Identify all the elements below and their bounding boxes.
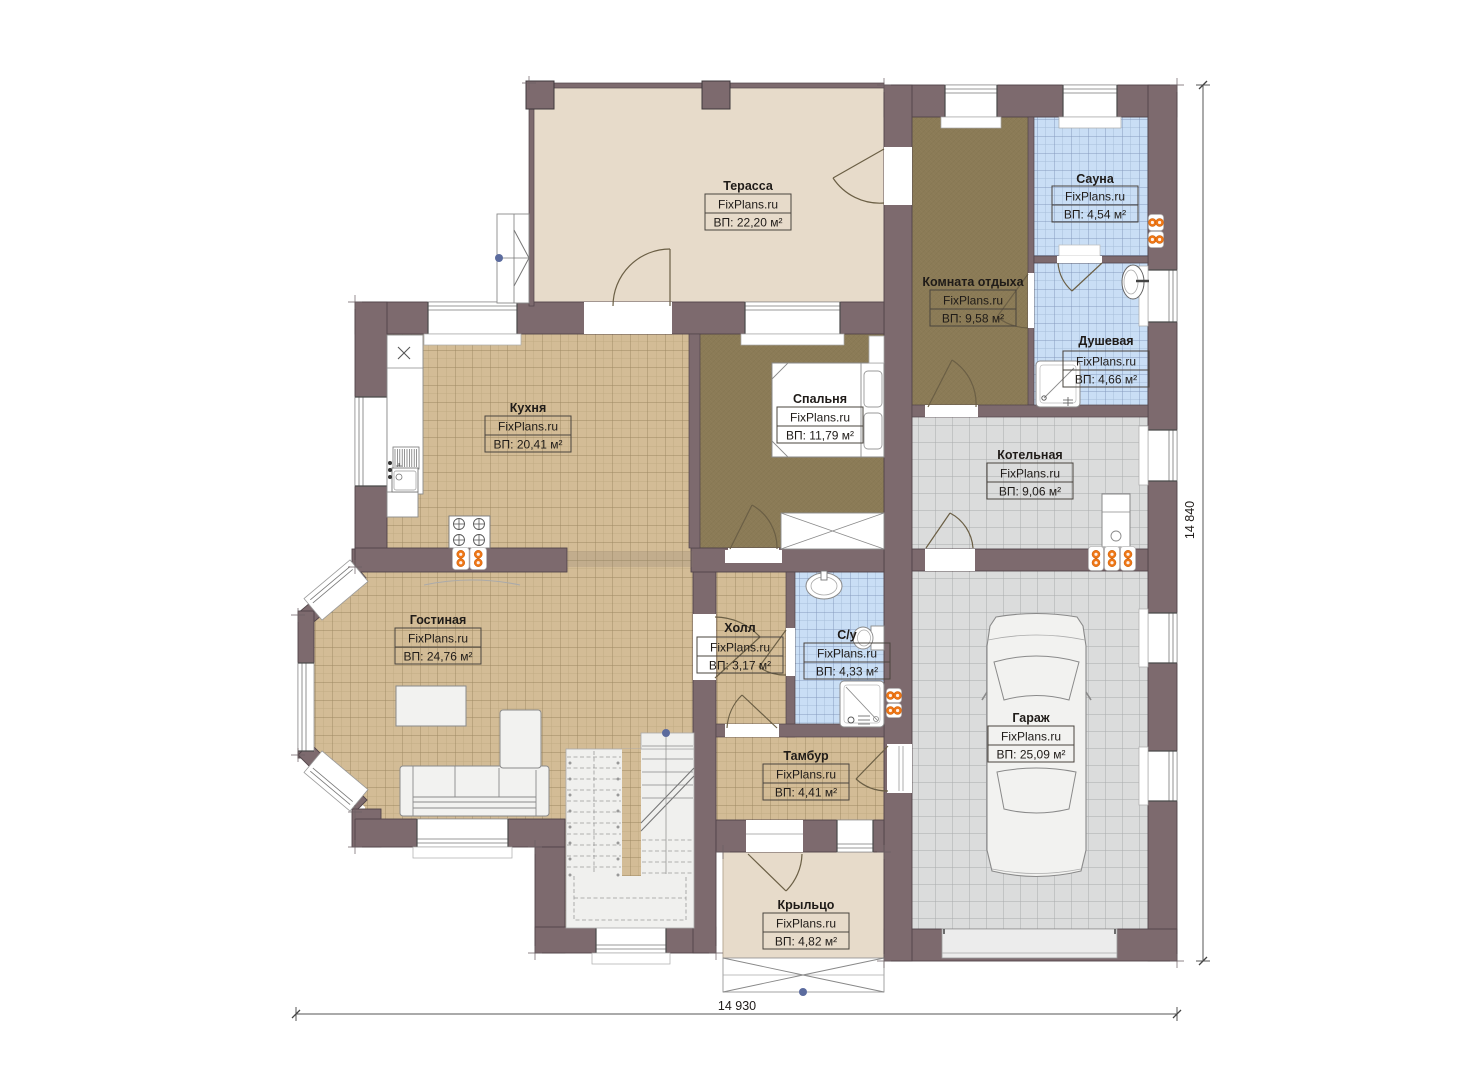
svg-text:ВП: 20,41 м²: ВП: 20,41 м²	[494, 438, 563, 452]
svg-text:Крыльцо: Крыльцо	[778, 898, 835, 912]
svg-text:Комната отдыха: Комната отдыха	[922, 275, 1024, 289]
svg-text:FixPlans.ru: FixPlans.ru	[817, 647, 877, 661]
svg-text:ВП: 24,76 м²: ВП: 24,76 м²	[404, 650, 473, 664]
svg-text:ВП: 4,82 м²: ВП: 4,82 м²	[775, 935, 837, 949]
svg-text:ВП: 4,33 м²: ВП: 4,33 м²	[816, 665, 878, 679]
svg-text:FixPlans.ru: FixPlans.ru	[943, 294, 1003, 308]
svg-text:Тамбур: Тамбур	[783, 749, 829, 763]
svg-text:ВП: 4,41 м²: ВП: 4,41 м²	[775, 786, 837, 800]
svg-text:Сауна: Сауна	[1076, 172, 1115, 186]
svg-text:FixPlans.ru: FixPlans.ru	[718, 198, 778, 212]
svg-text:Спальня: Спальня	[793, 392, 847, 406]
svg-text:ВП: 25,09 м²: ВП: 25,09 м²	[997, 748, 1066, 762]
svg-text:14 840: 14 840	[1183, 501, 1197, 539]
svg-text:ВП: 9,58 м²: ВП: 9,58 м²	[942, 312, 1004, 326]
svg-text:ВП: 3,17 м²: ВП: 3,17 м²	[709, 659, 771, 673]
svg-text:Гостиная: Гостиная	[410, 613, 467, 627]
svg-text:ВП: 4,66 м²: ВП: 4,66 м²	[1075, 373, 1137, 387]
svg-text:FixPlans.ru: FixPlans.ru	[776, 917, 836, 931]
svg-text:Холл: Холл	[724, 621, 755, 635]
svg-text:ВП: 4,54 м²: ВП: 4,54 м²	[1064, 208, 1126, 222]
svg-text:FixPlans.ru: FixPlans.ru	[1000, 467, 1060, 481]
svg-text:FixPlans.ru: FixPlans.ru	[776, 768, 836, 782]
svg-text:FixPlans.ru: FixPlans.ru	[498, 420, 558, 434]
svg-text:FixPlans.ru: FixPlans.ru	[1076, 355, 1136, 369]
svg-text:Душевая: Душевая	[1078, 334, 1133, 348]
svg-text:Терасса: Терасса	[723, 179, 774, 193]
svg-text:С/у: С/у	[837, 628, 857, 642]
svg-text:FixPlans.ru: FixPlans.ru	[710, 641, 770, 655]
svg-text:FixPlans.ru: FixPlans.ru	[1001, 730, 1061, 744]
svg-text:14 930: 14 930	[718, 999, 756, 1013]
svg-text:ВП: 9,06 м²: ВП: 9,06 м²	[999, 485, 1061, 499]
svg-text:Гараж: Гараж	[1012, 711, 1049, 725]
svg-text:FixPlans.ru: FixPlans.ru	[1065, 190, 1125, 204]
svg-text:FixPlans.ru: FixPlans.ru	[408, 632, 468, 646]
svg-text:ВП: 22,20 м²: ВП: 22,20 м²	[714, 216, 783, 230]
svg-text:Кухня: Кухня	[510, 401, 547, 415]
svg-text:FixPlans.ru: FixPlans.ru	[790, 411, 850, 425]
svg-text:Котельная: Котельная	[997, 448, 1062, 462]
svg-text:ВП: 11,79 м²: ВП: 11,79 м²	[786, 429, 854, 443]
